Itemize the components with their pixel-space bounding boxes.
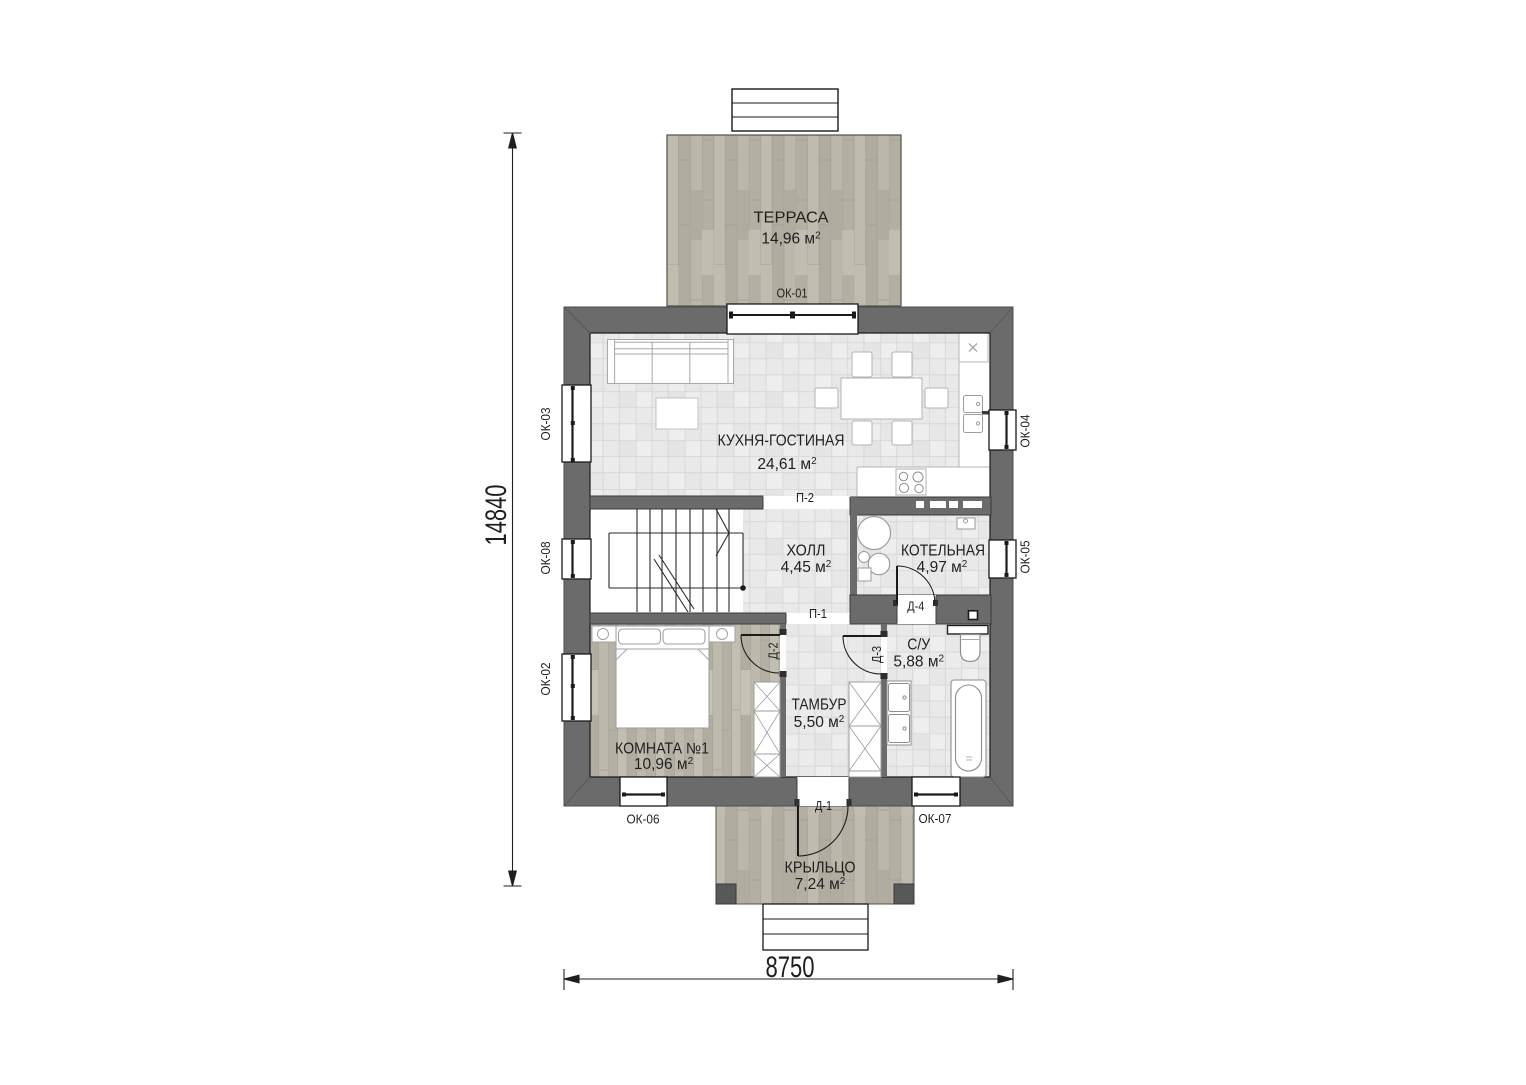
svg-text:КОМНАТА №1: КОМНАТА №1	[615, 741, 709, 758]
svg-text:8750: 8750	[766, 951, 815, 984]
svg-text:5,50 м2: 5,50 м2	[794, 714, 845, 731]
svg-text:14,96 м2: 14,96 м2	[761, 231, 821, 248]
svg-text:Д-4: Д-4	[907, 599, 924, 614]
svg-text:ОК-02: ОК-02	[538, 663, 553, 696]
svg-text:ОК-01: ОК-01	[777, 286, 808, 301]
svg-text:ОК-07: ОК-07	[919, 811, 952, 826]
svg-text:ОК-05: ОК-05	[1018, 541, 1033, 574]
svg-text:ТЕРРАСА: ТЕРРАСА	[754, 210, 829, 227]
svg-text:ОК-04: ОК-04	[1018, 415, 1033, 448]
svg-text:14840: 14840	[480, 485, 513, 546]
svg-text:ОК-03: ОК-03	[538, 408, 553, 441]
svg-text:КРЫЛЬЦО: КРЫЛЬЦО	[785, 860, 856, 877]
svg-text:4,97 м2: 4,97 м2	[917, 559, 968, 576]
svg-text:5,88 м2: 5,88 м2	[893, 654, 944, 671]
svg-text:Д-3: Д-3	[869, 646, 884, 663]
svg-text:7,24 м2: 7,24 м2	[795, 876, 846, 893]
svg-text:КУХНЯ-ГОСТИНАЯ: КУХНЯ-ГОСТИНАЯ	[718, 433, 845, 450]
svg-text:Д-1: Д-1	[815, 798, 832, 813]
svg-text:П-2: П-2	[796, 490, 814, 505]
svg-text:ОК-06: ОК-06	[627, 812, 660, 827]
svg-text:П-1: П-1	[809, 606, 827, 621]
svg-text:ХОЛЛ: ХОЛЛ	[787, 543, 826, 560]
svg-text:4,45 м2: 4,45 м2	[781, 559, 832, 576]
svg-text:ТАМБУР: ТАМБУР	[792, 697, 847, 714]
svg-text:С/У: С/У	[907, 637, 930, 654]
svg-text:Д-2: Д-2	[766, 643, 781, 660]
svg-text:КОТЕЛЬНАЯ: КОТЕЛЬНАЯ	[901, 543, 985, 560]
svg-text:24,61 м2: 24,61 м2	[757, 456, 817, 473]
svg-text:ОК-08: ОК-08	[538, 542, 553, 575]
svg-text:10,96 м2: 10,96 м2	[634, 756, 694, 773]
